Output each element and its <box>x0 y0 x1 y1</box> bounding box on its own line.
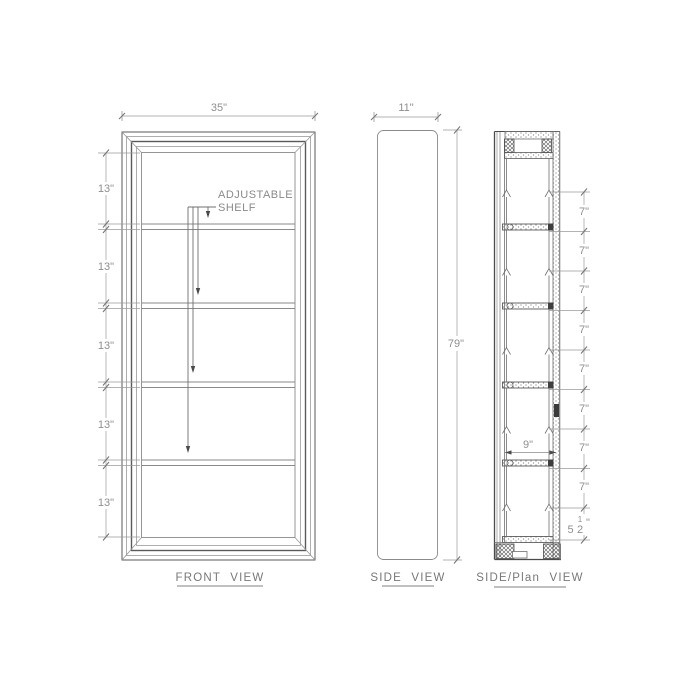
section-shelves <box>503 224 554 543</box>
back-panel-section <box>553 132 560 560</box>
shelf-support <box>548 382 554 389</box>
top-left-blocking <box>505 139 515 153</box>
shelf-dim-label-1: 13" <box>98 183 114 195</box>
bottom-panel-section <box>503 537 554 543</box>
drawing-svg: 35" <box>0 0 700 700</box>
bottom-dim-whole: 5 <box>567 524 573 536</box>
pin-dim-label-1: 7" <box>579 206 589 218</box>
side-view-title: SIDE VIEW <box>370 572 445 586</box>
top-rail-section <box>505 132 553 140</box>
pin-dim-label-5: 7" <box>579 363 589 375</box>
side-height-dimension: 79" <box>443 127 470 564</box>
bottom-dim-denominator: 2 <box>577 524 583 536</box>
pin-dim-label-7: 7" <box>579 442 589 454</box>
section-shelf <box>503 460 554 467</box>
base-front-blocking <box>496 544 514 559</box>
adjustable-shelf-label-line1: ADJUSTABLE <box>218 189 293 201</box>
side-plan-view: 9" <box>476 132 593 588</box>
side-width-dim-label: 11" <box>398 102 413 114</box>
front-width-dim-label: 35" <box>211 102 227 114</box>
shelf-support <box>548 224 554 231</box>
bottom-dim-label: 5 1 2 " <box>563 514 590 536</box>
pin-dim-label-2: 7" <box>579 245 589 257</box>
section-depth-dimension: 9" <box>505 439 556 455</box>
side-plan-view-title: SIDE/Plan VIEW <box>476 572 583 587</box>
section-shelf <box>503 382 554 389</box>
toe-kick-notch <box>513 552 528 559</box>
pin-strips <box>503 159 554 537</box>
front-height-dimensions: 13" 13" 13" 13" 13" <box>96 150 140 541</box>
pin-dim-label-8: 7" <box>579 481 589 493</box>
shelf-dim-label-5: 13" <box>98 497 114 509</box>
shelf-dim-label-3: 13" <box>98 340 114 352</box>
pin-dim-label-4: 7" <box>579 324 589 336</box>
front-view-title-label: FRONT VIEW <box>176 572 265 584</box>
bottom-dim-unit: " <box>586 517 590 529</box>
side-view: 11" 79" SIDE VIEW <box>370 102 470 586</box>
section-shelf <box>503 224 554 231</box>
bottom-dim-numerator: 1 <box>578 515 583 524</box>
section-top-construction <box>495 132 561 159</box>
side-view-title-label: SIDE VIEW <box>370 572 445 584</box>
shelf-support <box>548 460 554 467</box>
section-depth-dim-label: 9" <box>523 439 533 451</box>
adjustable-shelf-annotation: ADJUSTABLE SHELF <box>186 189 293 453</box>
base-back-blocking <box>544 544 561 559</box>
side-plan-view-title-label: SIDE/Plan VIEW <box>476 572 583 584</box>
front-view: 35" <box>96 102 318 586</box>
adjustable-shelf-label-line2: SHELF <box>218 202 256 214</box>
top-panel-section <box>505 153 554 159</box>
cad-drawing-sheet: 35" <box>0 0 700 700</box>
pin-dim-label-3: 7" <box>579 284 589 296</box>
pin-dim-label-6: 7" <box>579 403 589 415</box>
top-right-blocking <box>542 139 552 153</box>
side-height-dim-label: 79" <box>448 338 464 350</box>
back-panel-catch <box>554 404 559 417</box>
side-panel-outline <box>378 131 438 560</box>
front-shelves <box>142 224 296 466</box>
front-view-title: FRONT VIEW <box>176 572 265 586</box>
shelf-dim-label-2: 13" <box>98 261 114 273</box>
shelf-dim-label-4: 13" <box>98 419 114 431</box>
shelf-support <box>548 303 554 310</box>
section-shelf <box>503 303 554 310</box>
